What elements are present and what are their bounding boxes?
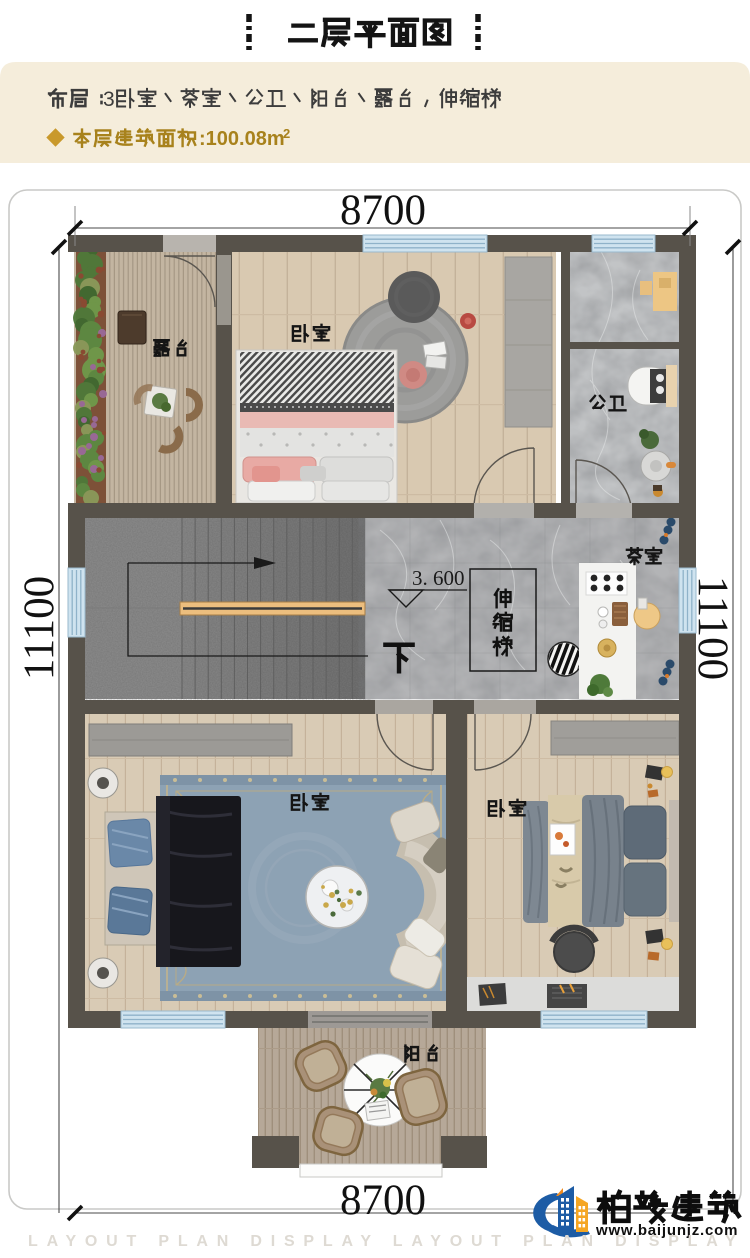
svg-text:3: 3 <box>103 88 115 111</box>
svg-text:11100: 11100 <box>689 576 736 680</box>
svg-text:LAYOUT PLAN DISPLAY LAYOUT PLA: LAYOUT PLAN DISPLAY LAYOUT PLAN DISPLAY <box>28 1233 745 1250</box>
svg-text:8700: 8700 <box>340 1177 426 1224</box>
svg-text:8700: 8700 <box>340 187 426 234</box>
svg-text::100.08m: :100.08m <box>199 128 285 150</box>
svg-text:11100: 11100 <box>16 576 63 680</box>
svg-text:3. 600: 3. 600 <box>412 566 465 590</box>
svg-text:2: 2 <box>283 126 290 141</box>
